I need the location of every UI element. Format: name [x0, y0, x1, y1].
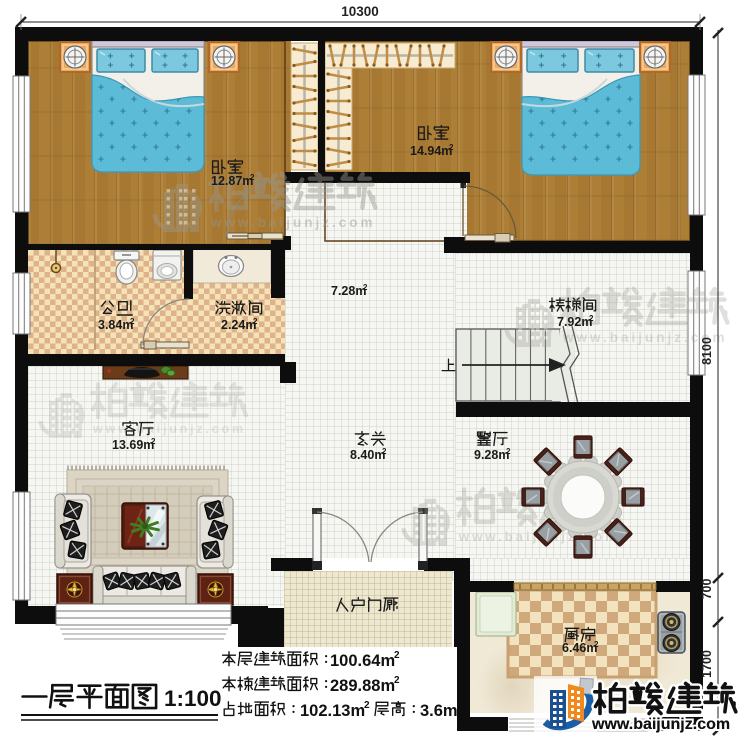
svg-text:14.94m: 14.94m: [410, 144, 452, 158]
svg-text:2: 2: [394, 675, 400, 686]
svg-text:10300: 10300: [341, 4, 379, 19]
svg-text:2: 2: [589, 314, 594, 323]
svg-text:2.24m: 2.24m: [221, 318, 256, 332]
svg-text:2: 2: [394, 650, 400, 661]
svg-text:2: 2: [253, 317, 258, 326]
svg-text:100.64m: 100.64m: [330, 652, 395, 670]
svg-text:www.baijunjz.com: www.baijunjz.com: [591, 716, 730, 733]
svg-text:2: 2: [130, 317, 135, 326]
svg-text:12.87m: 12.87m: [211, 174, 253, 188]
svg-text:7.28m: 7.28m: [331, 284, 366, 298]
svg-text:3.84m: 3.84m: [98, 318, 133, 332]
svg-text:www.baijunjz.com: www.baijunjz.com: [92, 422, 246, 436]
svg-text:13.69m: 13.69m: [112, 438, 154, 452]
svg-text:2: 2: [382, 447, 387, 456]
svg-text:8.40m: 8.40m: [350, 448, 385, 462]
svg-text:9.28m: 9.28m: [474, 448, 509, 462]
svg-text:6.46m: 6.46m: [562, 641, 597, 655]
svg-text:www.baijunjz.com: www.baijunjz.com: [210, 215, 376, 230]
svg-text:2: 2: [363, 283, 368, 292]
svg-text:2: 2: [151, 437, 156, 446]
svg-text:289.88m: 289.88m: [330, 677, 395, 695]
svg-text:1:100: 1:100: [164, 686, 222, 711]
svg-text:700: 700: [700, 579, 714, 600]
svg-text:2: 2: [449, 143, 454, 152]
svg-text:7.92m: 7.92m: [557, 315, 592, 329]
svg-text:2: 2: [250, 173, 255, 182]
svg-text:2: 2: [594, 640, 599, 649]
svg-text:2: 2: [364, 700, 370, 711]
svg-text:1700: 1700: [700, 650, 714, 678]
svg-text:8100: 8100: [700, 337, 714, 365]
svg-text:2: 2: [506, 447, 511, 456]
svg-text:102.13m: 102.13m: [300, 702, 365, 720]
svg-text:3.6m: 3.6m: [420, 702, 458, 720]
